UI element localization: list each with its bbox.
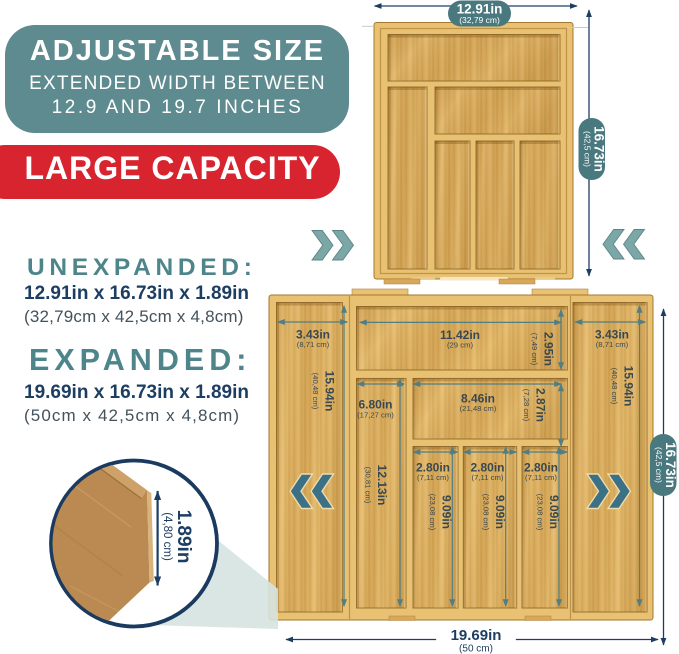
svg-text:(32,79 cm): (32,79 cm) <box>459 15 500 25</box>
svg-text:16.73in: 16.73in <box>663 442 678 488</box>
svg-text:(23,08 cm): (23,08 cm) <box>536 494 545 531</box>
svg-text:(8,71 cm): (8,71 cm) <box>297 340 330 349</box>
svg-text:9.09in: 9.09in <box>493 495 507 529</box>
svg-text:15.94in: 15.94in <box>622 366 636 407</box>
svg-text:1.89in: 1.89in <box>173 510 194 564</box>
svg-text:15.94in: 15.94in <box>323 371 337 412</box>
svg-text:(8,71 cm): (8,71 cm) <box>596 340 629 349</box>
svg-text:19.69in: 19.69in <box>451 627 502 644</box>
svg-text:2.95in: 2.95in <box>542 332 556 366</box>
svg-text:(17,27 cm): (17,27 cm) <box>357 411 394 420</box>
svg-text:(29 cm): (29 cm) <box>447 341 473 350</box>
svg-text:(7,28 cm): (7,28 cm) <box>522 389 531 422</box>
svg-text:(40,48 cm): (40,48 cm) <box>610 368 619 405</box>
svg-text:(4,80 cm): (4,80 cm) <box>161 512 173 561</box>
svg-text:2.87in: 2.87in <box>534 388 548 422</box>
svg-text:(40,48 cm): (40,48 cm) <box>311 373 320 410</box>
svg-text:(7,11 cm): (7,11 cm) <box>525 473 557 482</box>
svg-text:(23,08 cm): (23,08 cm) <box>482 494 491 531</box>
svg-text:16.73in: 16.73in <box>592 126 607 172</box>
svg-text:9.09in: 9.09in <box>547 495 561 529</box>
svg-text:(50 cm): (50 cm) <box>459 644 493 654</box>
svg-text:(7,11 cm): (7,11 cm) <box>417 473 449 482</box>
svg-text:(7,11 cm): (7,11 cm) <box>472 473 504 482</box>
svg-text:(7,49 cm): (7,49 cm) <box>530 333 539 366</box>
svg-text:9.09in: 9.09in <box>440 495 454 529</box>
svg-text:(42,5 cm): (42,5 cm) <box>654 447 664 483</box>
svg-text:(30,81 cm): (30,81 cm) <box>364 467 373 504</box>
svg-text:12.13in: 12.13in <box>375 465 389 506</box>
svg-text:(21,48 cm): (21,48 cm) <box>460 404 497 413</box>
svg-text:(42,5 cm): (42,5 cm) <box>583 131 593 167</box>
svg-text:(23,08 cm): (23,08 cm) <box>428 494 437 531</box>
